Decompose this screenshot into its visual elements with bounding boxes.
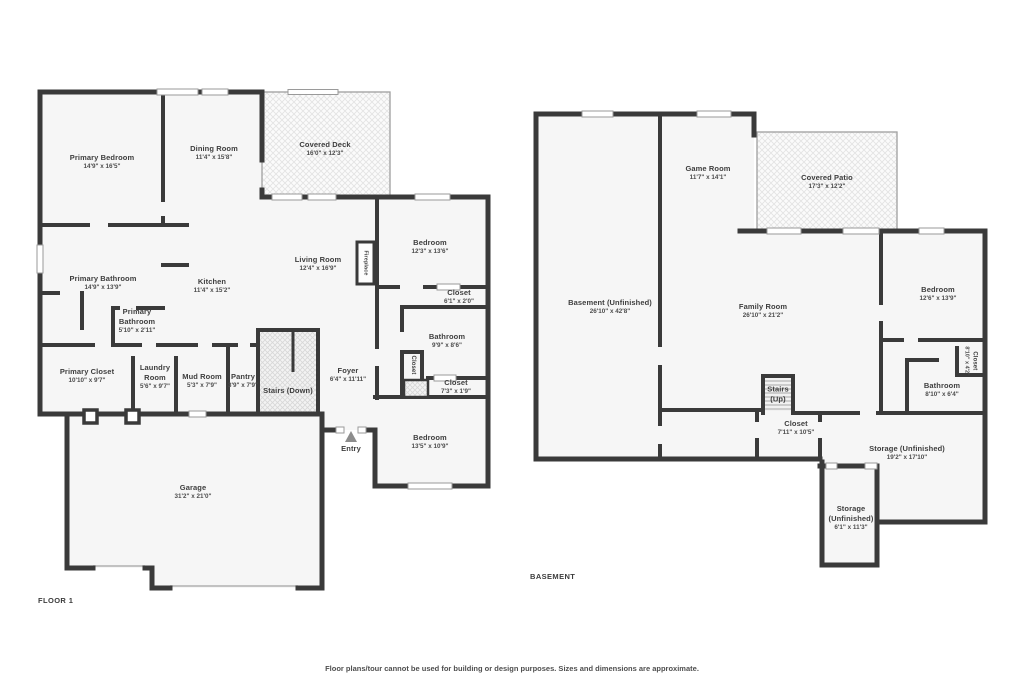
room-label-covered-patio: Covered Patio17'3" x 12'2" bbox=[801, 173, 853, 191]
room-name: Storage (Unfinished) bbox=[869, 444, 945, 454]
room-name: Bathroom bbox=[924, 381, 960, 391]
room-label-closet-3: Closet8'10" x 4'2" bbox=[963, 346, 978, 375]
room-dims: 12'6" x 13'9" bbox=[920, 295, 957, 303]
room-dims: 26'10" x 21'2" bbox=[739, 312, 787, 320]
room-dims: 8'10" x 4'2" bbox=[963, 346, 970, 375]
room-dims: 8'10" x 6'4" bbox=[924, 391, 960, 399]
room-name: Family Room bbox=[739, 302, 787, 312]
room-label-bedroom-3: Bedroom12'6" x 13'9" bbox=[920, 285, 957, 303]
room-name: Covered Patio bbox=[801, 173, 853, 183]
room-label-game-room: Game Room11'7" x 14'1" bbox=[685, 164, 730, 182]
disclaimer-text: Floor plans/tour cannot be used for buil… bbox=[0, 664, 1024, 673]
room-label-bathroom-2: Bathroom8'10" x 6'4" bbox=[924, 381, 960, 399]
room-dims: 7'11" x 10'5" bbox=[778, 429, 815, 437]
room-name: Closet bbox=[778, 419, 815, 429]
room-labels-basement: Basement (Unfinished)26'10" x 42'8"Game … bbox=[0, 0, 1024, 682]
room-label-family-room: Family Room26'10" x 21'2" bbox=[739, 302, 787, 320]
room-label-storage-2: Storage (Unfinished)6'1" x 11'3" bbox=[823, 504, 879, 532]
room-name: Basement (Unfinished) bbox=[568, 298, 652, 308]
room-name: Bedroom bbox=[920, 285, 957, 295]
room-name: Game Room bbox=[685, 164, 730, 174]
room-dims: 19'2" x 17'10" bbox=[869, 454, 945, 462]
room-dims: 6'1" x 11'3" bbox=[823, 524, 879, 532]
room-dims: 17'3" x 12'2" bbox=[801, 183, 853, 191]
room-dims: 26'10" x 42'8" bbox=[568, 308, 652, 316]
room-name: Closet bbox=[970, 346, 978, 375]
basement-tag: BASEMENT bbox=[530, 572, 575, 581]
room-name: Storage (Unfinished) bbox=[823, 504, 879, 524]
floor-plan-canvas: Primary Bedroom14'9" x 16'5"Dining Room1… bbox=[0, 0, 1024, 682]
room-dims: 11'7" x 14'1" bbox=[685, 174, 730, 182]
room-label-storage-1: Storage (Unfinished)19'2" x 17'10" bbox=[869, 444, 945, 462]
room-label-basement-unfinished: Basement (Unfinished)26'10" x 42'8" bbox=[568, 298, 652, 316]
floor1-tag: FLOOR 1 bbox=[38, 596, 73, 605]
room-name: Stairs (Up) bbox=[762, 384, 794, 404]
room-label-stairs-up: Stairs (Up) bbox=[762, 384, 794, 404]
room-label-closet-4: Closet7'11" x 10'5" bbox=[778, 419, 815, 437]
